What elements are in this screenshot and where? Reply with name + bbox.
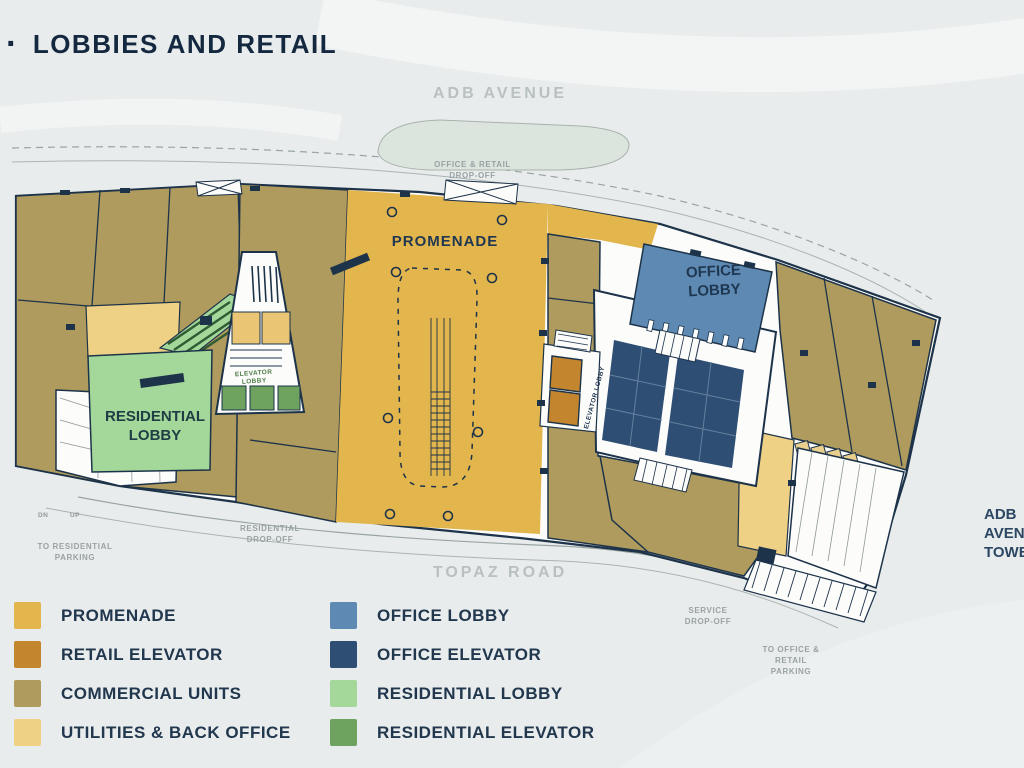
residential-lobby-label: RESIDENTIAL LOBBY xyxy=(90,408,220,446)
legend-item-utilities: UTILITIES & BACK OFFICE xyxy=(14,719,324,746)
legend-label: OFFICE ELEVATOR xyxy=(377,645,541,665)
legend-item-residential-lobby: RESIDENTIAL LOBBY xyxy=(330,680,640,707)
legend-column-1: PROMENADE RETAIL ELEVATOR COMMERCIAL UNI… xyxy=(14,602,324,758)
legend-item-promenade: PROMENADE xyxy=(14,602,324,629)
legend-swatch-commercial-units xyxy=(14,680,41,707)
title-text: LOBBIES AND RETAIL xyxy=(33,28,337,61)
legend-swatch-retail-elevator xyxy=(14,641,41,668)
retail-elevator-cab-2 xyxy=(548,390,580,426)
promenade-label: PROMENADE xyxy=(385,233,505,252)
legend-swatch-utilities xyxy=(14,719,41,746)
legend-item-residential-elevator: RESIDENTIAL ELEVATOR xyxy=(330,719,640,746)
legend-label: PROMENADE xyxy=(61,606,176,626)
residential-elevator-3 xyxy=(278,386,300,410)
street-label-adb-avenue: ADB AVENUE xyxy=(420,84,580,104)
legend-label: RESIDENTIAL LOBBY xyxy=(377,684,563,704)
legend-swatch-residential-lobby xyxy=(330,680,357,707)
legend-label: RETAIL ELEVATOR xyxy=(61,645,223,665)
legend-item-retail-elevator: RETAIL ELEVATOR xyxy=(14,641,324,668)
ramp-up-label: UP xyxy=(70,512,80,520)
residential-dropoff-label: RESIDENTIAL DROP-OFF xyxy=(225,524,315,546)
retail-elevator-cab-1 xyxy=(550,356,582,392)
residential-elevator-2 xyxy=(250,386,274,410)
to-office-retail-parking-label: TO OFFICE & RETAIL PARKING xyxy=(760,645,822,677)
adb-avenue-tower-label: ADB AVENUE TOWER xyxy=(984,506,1024,562)
legend-label: RESIDENTIAL ELEVATOR xyxy=(377,723,595,743)
legend-label: OFFICE LOBBY xyxy=(377,606,510,626)
zone-commercial-right xyxy=(776,262,936,470)
legend-item-office-elevator: OFFICE ELEVATOR xyxy=(330,641,640,668)
floor-plan-page: · LOBBIES AND RETAIL ADB AVENUE TOPAZ RO… xyxy=(0,0,1024,768)
office-retail-dropoff-label: OFFICE & RETAIL DROP-OFF xyxy=(430,160,515,182)
legend-item-office-lobby: OFFICE LOBBY xyxy=(330,602,640,629)
legend-swatch-office-lobby xyxy=(330,602,357,629)
legend-item-commercial-units: COMMERCIAL UNITS xyxy=(14,680,324,707)
office-lobby-label: OFFICE LOBBY xyxy=(673,261,755,303)
to-residential-parking-label: TO RESIDENTIAL PARKING xyxy=(25,542,125,564)
legend-label: COMMERCIAL UNITS xyxy=(61,684,242,704)
legend-swatch-office-elevator xyxy=(330,641,357,668)
legend-swatch-promenade xyxy=(14,602,41,629)
legend-column-2: OFFICE LOBBY OFFICE ELEVATOR RESIDENTIAL… xyxy=(330,602,640,758)
legend-swatch-residential-elevator xyxy=(330,719,357,746)
page-title: · LOBBIES AND RETAIL xyxy=(6,28,337,61)
ramp-dn-label: DN xyxy=(38,512,48,520)
legend-label: UTILITIES & BACK OFFICE xyxy=(61,723,291,743)
residential-elevator-1 xyxy=(222,386,246,410)
street-label-topaz-road: TOPAZ ROAD xyxy=(420,563,580,583)
service-dropoff-label: SERVICE DROP-OFF xyxy=(678,606,738,628)
